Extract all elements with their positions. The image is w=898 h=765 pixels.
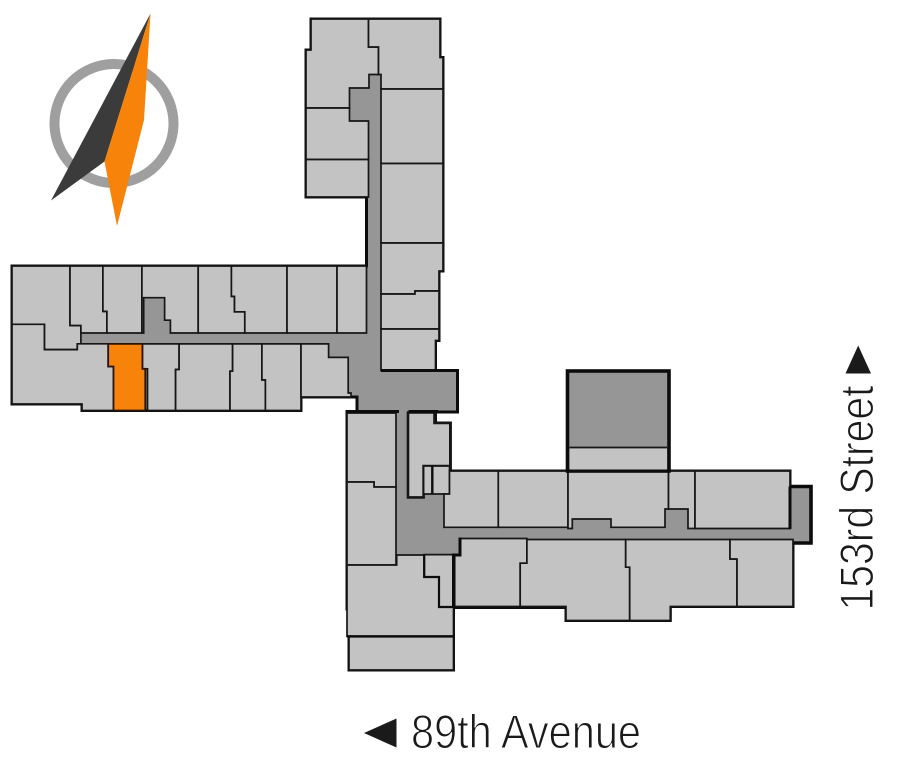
svg-text:153rd Street: 153rd Street <box>830 386 883 611</box>
svg-text:89th Avenue: 89th Avenue <box>411 705 641 758</box>
